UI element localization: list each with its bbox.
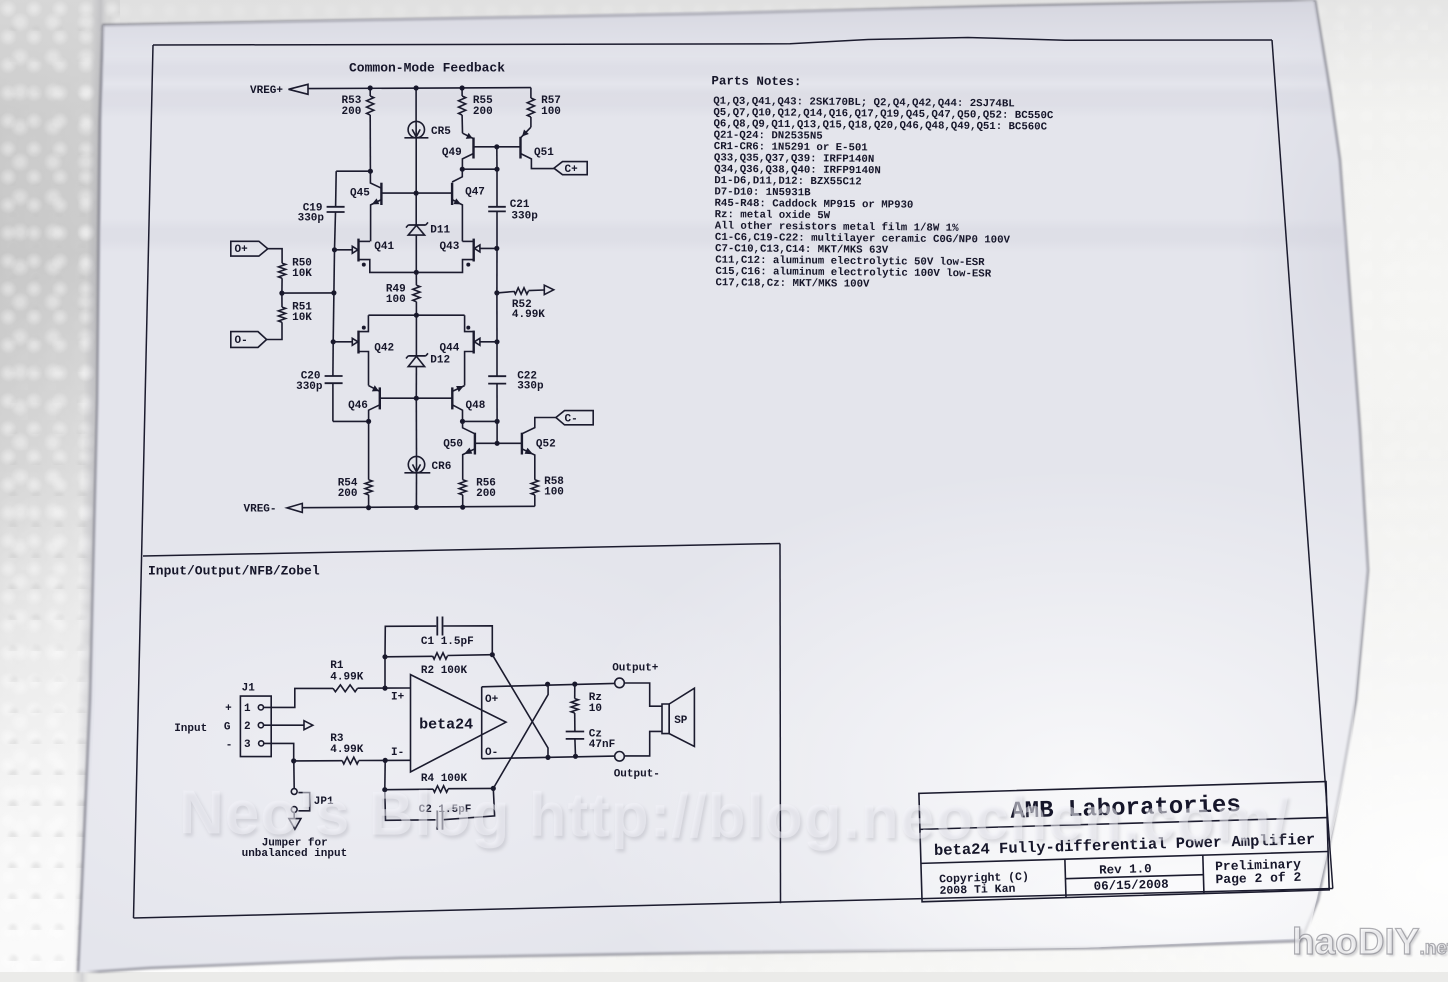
svg-text:R2 100K: R2 100K xyxy=(421,665,468,677)
svg-text:4.99K: 4.99K xyxy=(330,744,363,756)
svg-text:100: 100 xyxy=(544,487,564,499)
svg-text:Q51: Q51 xyxy=(534,147,554,159)
svg-text:C17,C18,Cz: MKT/MKS 100V: C17,C18,Cz: MKT/MKS 100V xyxy=(715,277,870,290)
svg-text:100: 100 xyxy=(386,294,406,306)
svg-text:O+: O+ xyxy=(485,694,499,706)
svg-text:330p: 330p xyxy=(517,381,544,393)
svg-text:47nF: 47nF xyxy=(589,739,615,751)
svg-text:330p: 330p xyxy=(296,381,323,393)
svg-text:Q43: Q43 xyxy=(440,241,460,253)
svg-text:D11: D11 xyxy=(430,224,450,236)
svg-text:200: 200 xyxy=(338,488,358,500)
svg-text:Rev 1.0: Rev 1.0 xyxy=(1099,862,1152,878)
svg-text:D12: D12 xyxy=(430,355,450,367)
svg-text:200: 200 xyxy=(476,488,496,500)
svg-text:O+: O+ xyxy=(235,244,249,256)
svg-text:Output-: Output- xyxy=(614,768,660,780)
svg-text:CR5: CR5 xyxy=(431,126,451,138)
svg-text:+: + xyxy=(225,703,232,715)
svg-text:Q48: Q48 xyxy=(466,400,486,412)
svg-text:Q52: Q52 xyxy=(536,439,556,451)
svg-text:O-: O- xyxy=(235,335,248,347)
svg-text:Parts Notes:: Parts Notes: xyxy=(711,74,801,89)
svg-text:C1 1.5pF: C1 1.5pF xyxy=(421,636,474,648)
svg-text:I+: I+ xyxy=(391,692,405,704)
svg-text:10K: 10K xyxy=(292,268,312,280)
svg-text:O-: O- xyxy=(485,747,498,759)
svg-text:1: 1 xyxy=(244,703,251,715)
svg-text:2: 2 xyxy=(244,721,251,733)
svg-text:Input: Input xyxy=(174,723,207,735)
svg-text:VREG-: VREG- xyxy=(244,504,277,516)
svg-text:-: - xyxy=(226,739,233,751)
svg-text:R1: R1 xyxy=(330,660,344,672)
svg-text:C21: C21 xyxy=(510,199,530,211)
svg-text:CR6: CR6 xyxy=(432,461,452,473)
svg-text:200: 200 xyxy=(473,106,493,118)
svg-text:C+: C+ xyxy=(565,164,579,176)
svg-text:C-: C- xyxy=(565,413,578,425)
svg-text:G: G xyxy=(224,722,231,734)
svg-text:Q44: Q44 xyxy=(440,343,460,355)
svg-text:Page 2 of 2: Page 2 of 2 xyxy=(1215,870,1301,888)
svg-text:200: 200 xyxy=(342,106,362,118)
svg-text:4.99K: 4.99K xyxy=(330,672,363,684)
svg-text:unbalanced input: unbalanced input xyxy=(242,848,348,860)
svg-text:Output+: Output+ xyxy=(612,663,659,675)
svg-text:330p: 330p xyxy=(298,213,325,225)
svg-text:10K: 10K xyxy=(292,312,312,324)
svg-text:Q45: Q45 xyxy=(350,187,370,199)
svg-text:J1: J1 xyxy=(242,683,256,695)
svg-text:Q42: Q42 xyxy=(374,343,394,355)
svg-text:330p: 330p xyxy=(511,210,538,222)
svg-text:Input/Output/NFB/Zobel: Input/Output/NFB/Zobel xyxy=(148,564,320,579)
svg-text:100: 100 xyxy=(541,106,561,118)
svg-text:I-: I- xyxy=(391,747,404,759)
svg-text:SP: SP xyxy=(674,715,688,727)
svg-text:06/15/2008: 06/15/2008 xyxy=(1093,878,1168,894)
svg-text:Q41: Q41 xyxy=(374,241,394,253)
svg-text:Common-Mode Feedback: Common-Mode Feedback xyxy=(349,61,505,76)
svg-text:VREG+: VREG+ xyxy=(250,85,283,97)
svg-text:Q49: Q49 xyxy=(442,147,462,159)
svg-text:Q47: Q47 xyxy=(465,187,485,199)
svg-text:4.99K: 4.99K xyxy=(512,309,545,321)
svg-text:2008 Ti Kan: 2008 Ti Kan xyxy=(939,883,1015,898)
svg-text:10: 10 xyxy=(589,703,602,715)
svg-text:Q46: Q46 xyxy=(348,400,368,412)
svg-text:beta24: beta24 xyxy=(419,716,473,733)
svg-text:3: 3 xyxy=(244,739,251,751)
svg-text:Q50: Q50 xyxy=(443,439,463,451)
